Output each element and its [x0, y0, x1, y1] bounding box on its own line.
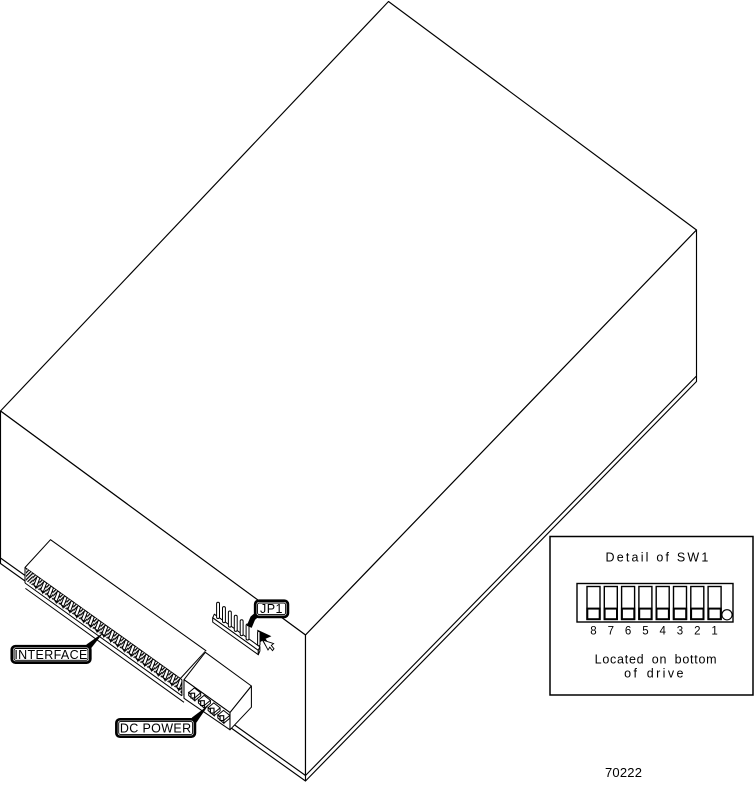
svg-text:70222: 70222 [605, 765, 642, 780]
svg-text:1: 1 [711, 626, 717, 638]
svg-text:INTERFACE: INTERFACE [14, 648, 87, 662]
svg-text:3: 3 [677, 626, 683, 638]
svg-text:4: 4 [659, 626, 666, 638]
svg-text:Located on bottom: Located on bottom [595, 653, 718, 667]
svg-text:8: 8 [590, 626, 596, 638]
svg-text:of drive: of drive [624, 667, 686, 681]
svg-text:2: 2 [694, 626, 700, 638]
svg-text:Detail of SW1: Detail of SW1 [605, 551, 710, 565]
svg-text:JP1: JP1 [260, 602, 283, 616]
svg-text:6: 6 [625, 626, 631, 638]
svg-text:7: 7 [608, 626, 614, 638]
svg-text:5: 5 [642, 626, 648, 638]
svg-text:DC POWER: DC POWER [120, 721, 192, 735]
